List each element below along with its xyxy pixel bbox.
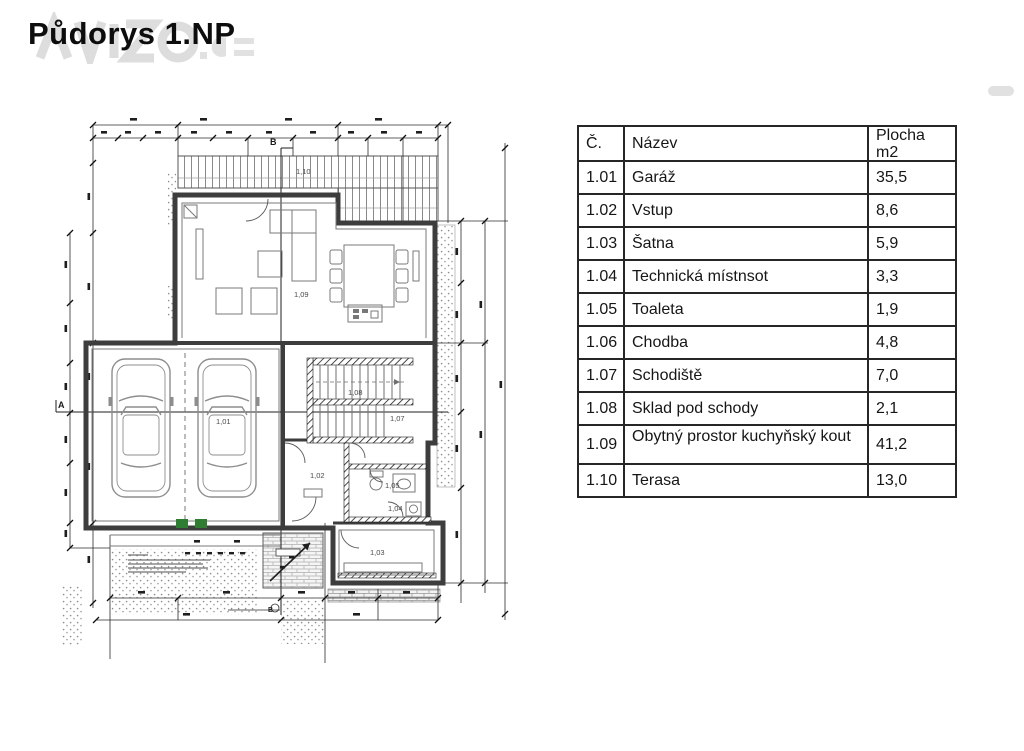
room-area: 8,6	[868, 194, 956, 227]
room-label-obytny: 1,09	[294, 290, 309, 299]
room-name-wrapped: Obytný prostor kuchyňský kout	[632, 427, 860, 463]
section-marker-a: A	[58, 400, 65, 410]
room-name: Sklad pod schody	[624, 392, 868, 425]
table-row: 1.04 Technická místnsot 3,3	[578, 260, 956, 293]
car-left	[109, 359, 174, 497]
room-number: 1.02	[578, 194, 624, 227]
table-row: 1.08 Sklad pod schody 2,1	[578, 392, 956, 425]
room-area: 13,0	[868, 464, 956, 497]
room-label-toaleta: 1,05	[385, 481, 400, 490]
room-table: Č. Název Plocha m2 1.01 Garáž 35,5 1.02 …	[577, 125, 957, 498]
table-row: 1.05 Toaleta 1,9	[578, 293, 956, 326]
header-area-line2: m2	[876, 144, 948, 160]
room-area: 5,9	[868, 227, 956, 260]
room-area: 4,8	[868, 326, 956, 359]
room-area: 7,0	[868, 359, 956, 392]
room-number: 1.08	[578, 392, 624, 425]
floor-plan: 1,10 1,09 1,01 1,08 1,07 1,02 1,05 1,04 …	[48, 103, 553, 678]
room-label-garaz: 1,01	[216, 417, 231, 426]
table-row: 1.10 Terasa 13,0	[578, 464, 956, 497]
room-area: 41,2	[868, 425, 956, 464]
room-name: Terasa	[624, 464, 868, 497]
section-marker-b2: B	[268, 607, 273, 614]
room-name: Schodiště	[624, 359, 868, 392]
room-number: 1.01	[578, 161, 624, 194]
page-title: Půdorys 1.NP	[28, 16, 236, 52]
room-name: Vstup	[624, 194, 868, 227]
header-number: Č.	[578, 126, 624, 161]
terrace-deck	[178, 156, 438, 221]
room-number: 1.06	[578, 326, 624, 359]
scan-smudge	[988, 86, 1014, 96]
room-name: Toaleta	[624, 293, 868, 326]
hatched-walls	[307, 358, 436, 578]
room-name: Technická místnsot	[624, 260, 868, 293]
room-label-terasa: 1,10	[296, 167, 311, 176]
room-label-vstup: 1,02	[310, 471, 325, 480]
room-name: Šatna	[624, 227, 868, 260]
header-area: Plocha m2	[868, 126, 956, 161]
table-row: 1.07 Schodiště 7,0	[578, 359, 956, 392]
room-name: Chodba	[624, 326, 868, 359]
table-header-row: Č. Název Plocha m2	[578, 126, 956, 161]
room-area: 3,3	[868, 260, 956, 293]
room-name: Obytný prostor kuchyňský kout	[624, 425, 868, 464]
section-marker-b: B	[270, 137, 277, 147]
room-number: 1.10	[578, 464, 624, 497]
room-label-schodiste: 1,07	[390, 414, 405, 423]
room-label-technicka: 1,04	[388, 504, 403, 513]
table-row: 1.02 Vstup 8,6	[578, 194, 956, 227]
exterior-walls	[86, 195, 443, 583]
header-area-line1: Plocha	[876, 127, 948, 144]
room-number: 1.03	[578, 227, 624, 260]
table-row: 1.06 Chodba 4,8	[578, 326, 956, 359]
room-area: 2,1	[868, 392, 956, 425]
room-number: 1.04	[578, 260, 624, 293]
table-row: 1.09 Obytný prostor kuchyňský kout 41,2	[578, 425, 956, 464]
room-number: 1.05	[578, 293, 624, 326]
room-number: 1.07	[578, 359, 624, 392]
car-right	[195, 359, 260, 497]
room-area: 1,9	[868, 293, 956, 326]
room-number: 1.09	[578, 425, 624, 464]
room-label-sklad: 1,08	[348, 388, 363, 397]
table-row: 1.01 Garáž 35,5	[578, 161, 956, 194]
header-name: Název	[624, 126, 868, 161]
room-area: 35,5	[868, 161, 956, 194]
page: Půdorys 1.NP	[0, 0, 1024, 751]
table-row: 1.03 Šatna 5,9	[578, 227, 956, 260]
room-name: Garáž	[624, 161, 868, 194]
interior-walls	[86, 343, 443, 528]
room-label-satna: 1,03	[370, 548, 385, 557]
